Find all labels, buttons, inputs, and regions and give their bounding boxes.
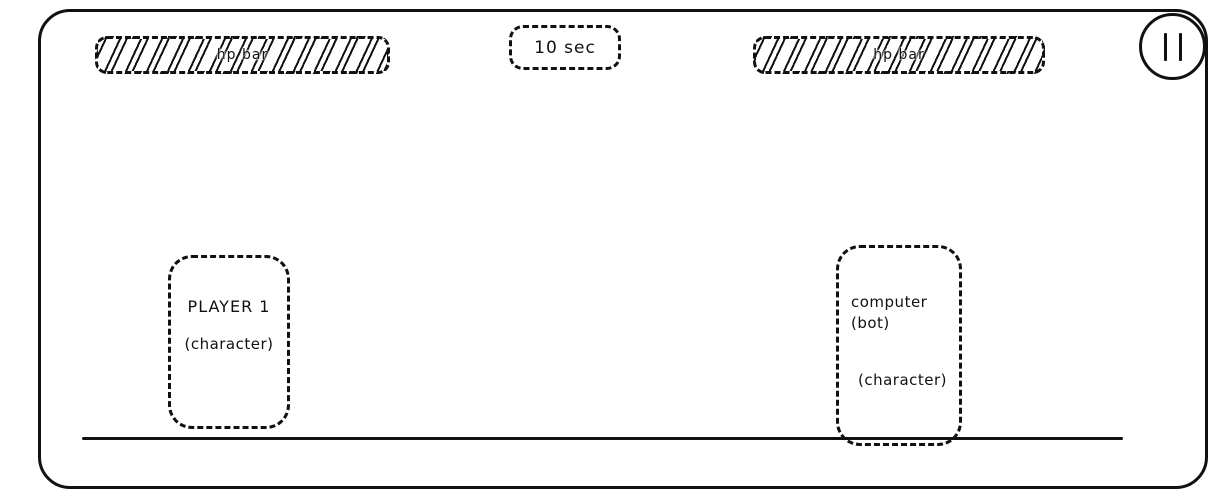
- opponent-hp-bar-label: hp bar: [873, 47, 924, 63]
- opponent-hp-bar: hp bar: [753, 36, 1045, 74]
- player-hp-bar-label: hp bar: [217, 47, 268, 63]
- opponent-character-placeholder-label: (character): [851, 371, 959, 389]
- pause-bar-left: [1164, 33, 1167, 61]
- player-hp-bar: hp bar: [95, 36, 390, 74]
- game-wireframe-screen: hp bar 10 sec hp bar PLAYER 1 (character…: [0, 0, 1224, 501]
- opponent-name-line2: (bot): [851, 313, 959, 334]
- player-character-box: PLAYER 1 (character): [168, 255, 290, 429]
- ground-line: [82, 437, 1123, 440]
- pause-button[interactable]: [1139, 13, 1206, 80]
- player-character-placeholder-label: (character): [171, 335, 287, 353]
- opponent-name-line1: computer: [851, 292, 959, 313]
- opponent-character-box: computer (bot) (character): [836, 245, 962, 446]
- pause-bar-right: [1179, 33, 1182, 61]
- round-timer: 10 sec: [509, 25, 621, 70]
- pause-icon: [1164, 33, 1182, 61]
- player-name-label: PLAYER 1: [171, 296, 287, 318]
- round-timer-label: 10 sec: [534, 38, 596, 58]
